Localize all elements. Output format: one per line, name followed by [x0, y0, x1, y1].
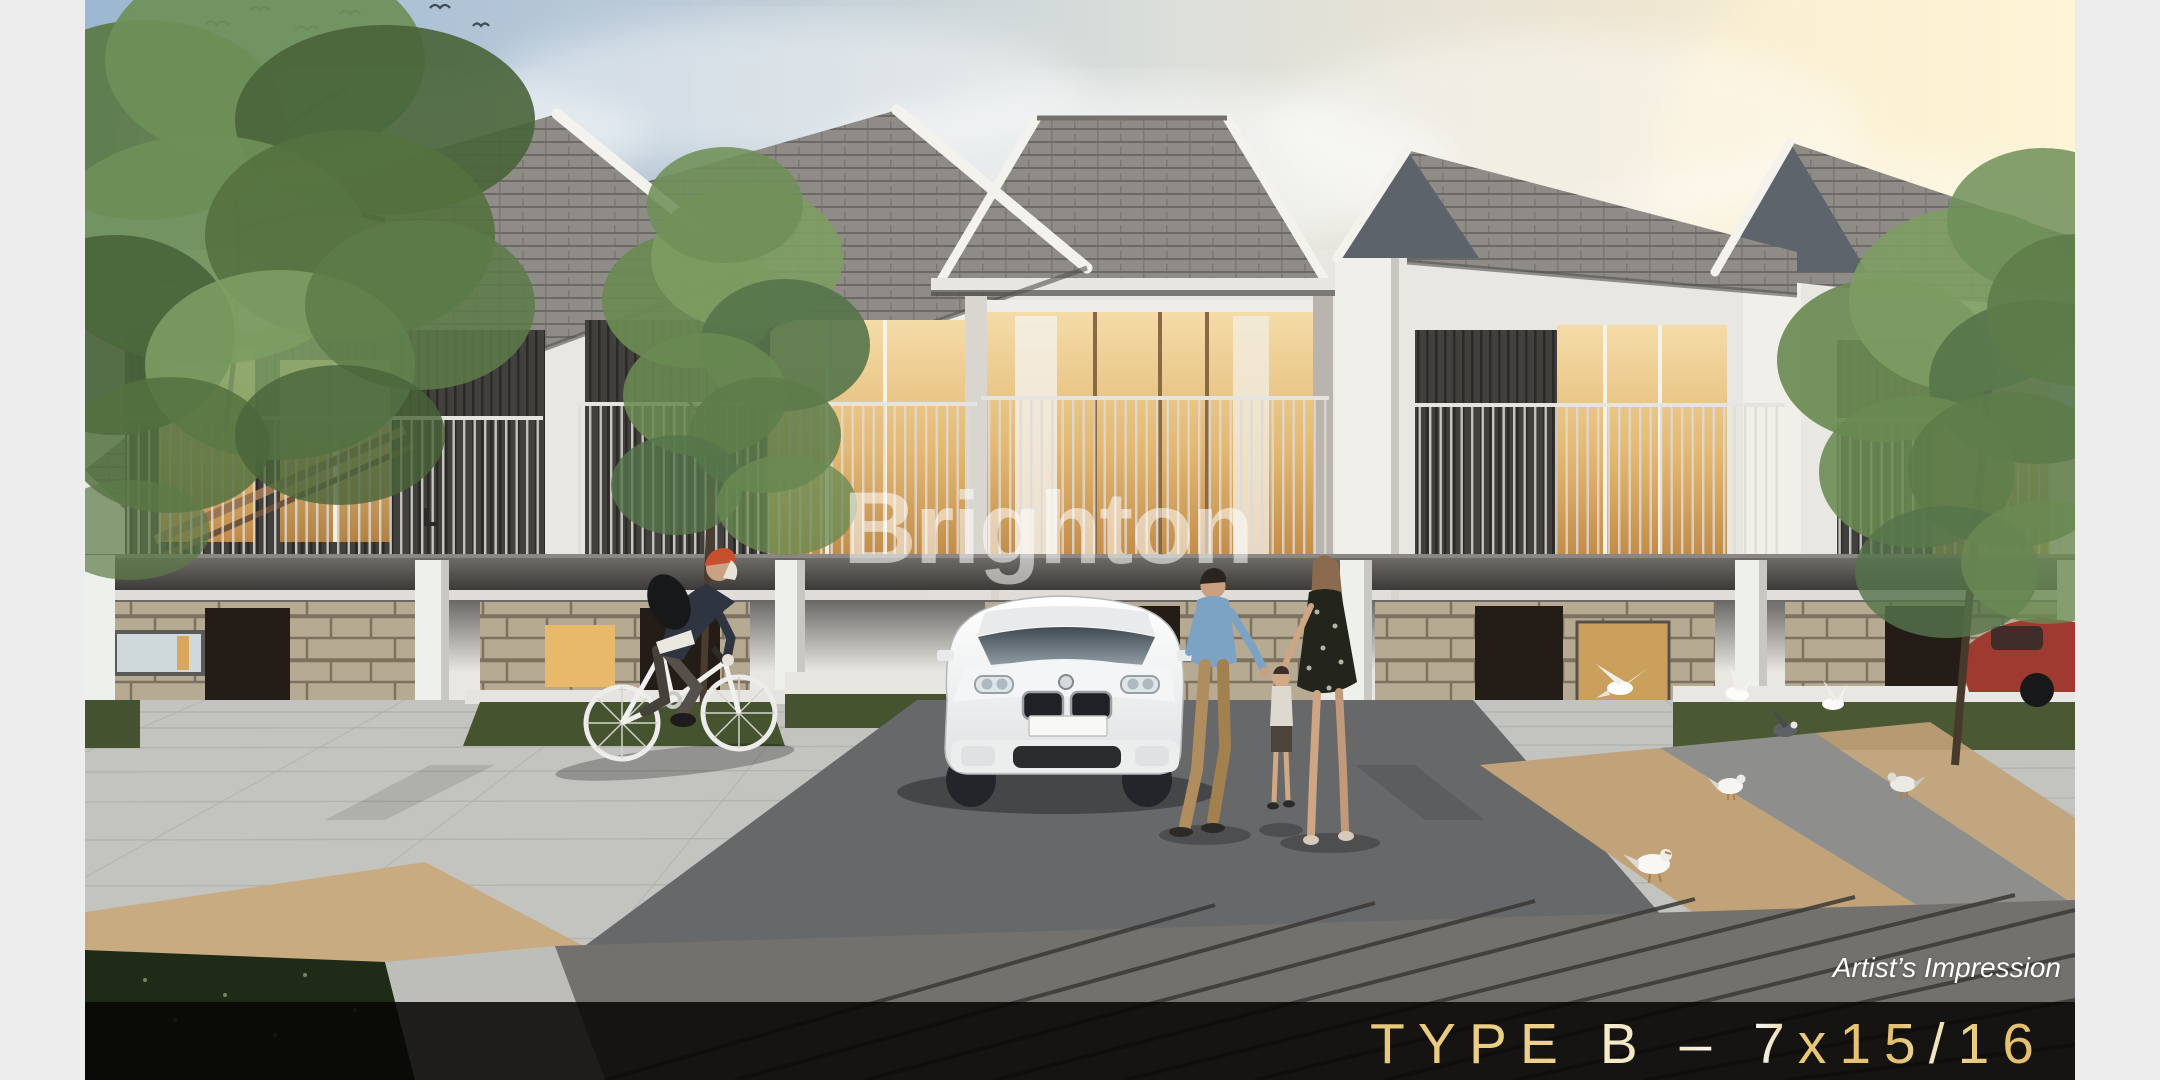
license-plate — [1029, 716, 1107, 736]
artists-impression-caption: Artist’s Impression — [1833, 952, 2061, 984]
brighton-watermark: Brighton — [843, 470, 1323, 587]
render-image: Brighton Artist’s Impression TYPE B – 7x… — [85, 0, 2075, 1080]
type-title: TYPE B – 7x15/16 — [1370, 1002, 2047, 1080]
page-background: Brighton Artist’s Impression TYPE B – 7x… — [0, 0, 2160, 1080]
car-badge — [1059, 675, 1073, 689]
title-banner: TYPE B – 7x15/16 — [85, 1002, 2075, 1080]
